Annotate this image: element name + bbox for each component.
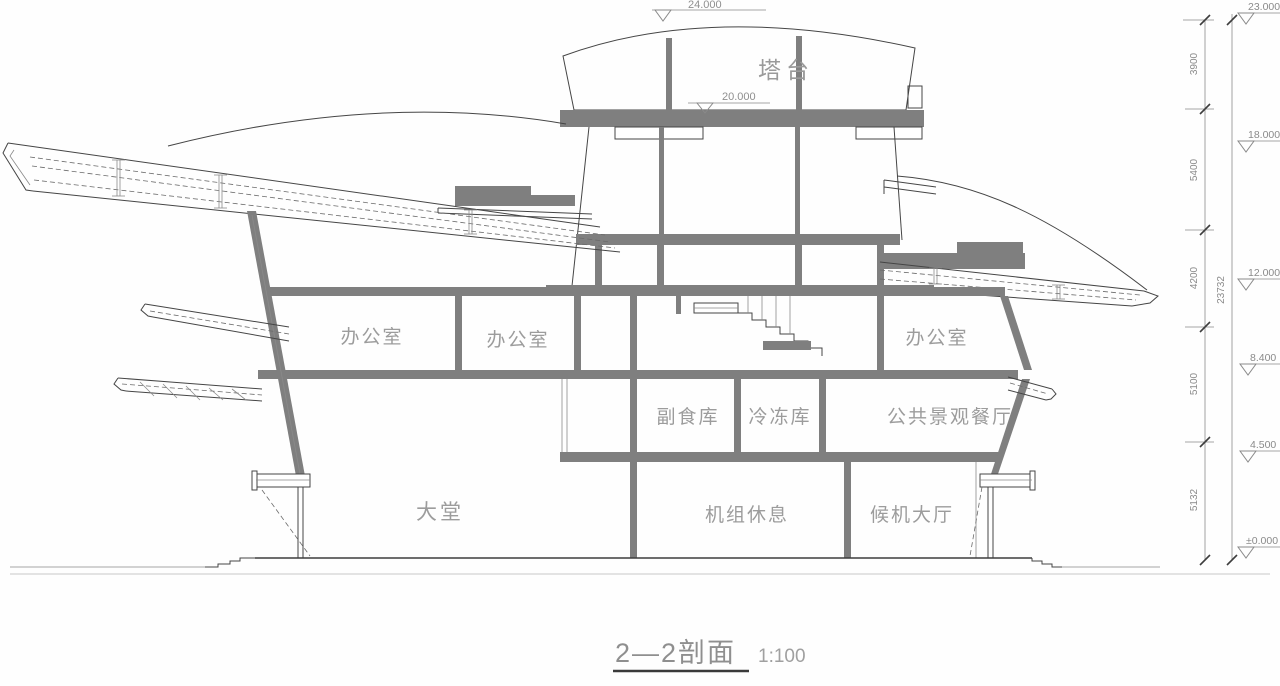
elevation-triangle-icon <box>1238 547 1254 558</box>
svg-text:23.000: 23.000 <box>1248 1 1280 13</box>
right-canopy <box>1008 377 1056 400</box>
room-label-crew-rest: 机组休息 <box>705 504 789 526</box>
room-label-office-left: 办公室 <box>340 326 403 348</box>
elevation-triangle-icon <box>1238 141 1254 152</box>
svg-text:12.000: 12.000 <box>1248 267 1280 279</box>
left-strut-column <box>247 211 310 558</box>
elevation-marker: 18.000 <box>1238 129 1280 152</box>
dim-segment: 5400 <box>1189 158 1200 181</box>
section-drawing-canvas: 塔台 24.000 20.000 <box>0 0 1280 686</box>
cab-base-band <box>560 110 924 127</box>
drawing-title-block: 2—2剖面 1:100 <box>613 638 806 671</box>
elevation-marker: ±0.000 <box>1238 535 1280 558</box>
elevation-marker: 23.000 <box>1238 1 1280 24</box>
stair-detail <box>694 296 822 356</box>
floor-slab-mid <box>258 370 1018 379</box>
svg-text:±0.000: ±0.000 <box>1246 535 1278 547</box>
elevation-value: 24.000 <box>688 0 722 11</box>
floor-slab-offices <box>264 287 1005 296</box>
tower-shaft <box>546 127 934 296</box>
room-label-office-mid: 办公室 <box>486 329 549 351</box>
elevation-marker-24000: 24.000 <box>652 0 766 21</box>
room-label-cold-storage: 冷冻库 <box>748 406 811 428</box>
ground <box>10 558 1270 574</box>
floor-slab-lower <box>560 452 1000 462</box>
dim-total: 23732 <box>1216 276 1227 304</box>
elevation-triangle-icon <box>1238 13 1254 24</box>
room-label-restaurant: 公共景观餐厅 <box>887 406 1013 428</box>
left-ibeam-bracket <box>256 474 310 487</box>
elevation-triangle-icon <box>1240 364 1256 375</box>
right-roof-curve <box>897 176 1147 290</box>
dim-segment: 5132 <box>1189 488 1200 511</box>
left-roof-curve <box>168 112 566 146</box>
elevation-markers-right: 23.000 18.000 12.000 8.400 4.500 ±0.000 <box>1238 1 1280 558</box>
drawing-scale: 1:100 <box>758 646 806 667</box>
right-shoulder-slabs <box>880 180 1025 269</box>
elevation-marker: 8.400 <box>1240 352 1280 375</box>
cab-trim-right <box>856 127 922 139</box>
tower-cab-label: 塔台 <box>758 57 814 83</box>
room-label-office-right: 办公室 <box>905 327 968 349</box>
left-shoulder-slabs <box>438 186 592 219</box>
dimension-chain: 3900 5400 4200 5100 5132 23732 <box>1183 14 1237 565</box>
tower-cab: 塔台 <box>560 27 924 139</box>
elevation-marker: 4.500 <box>1240 439 1280 462</box>
room-label-waiting-hall: 候机大厅 <box>870 504 954 526</box>
room-label-food-storage: 副食库 <box>656 406 719 428</box>
cab-notch <box>908 86 922 108</box>
elevation-value: 20.000 <box>722 91 756 103</box>
dim-segment: 3900 <box>1189 52 1200 75</box>
elevation-triangle-icon <box>1238 279 1254 290</box>
dim-segment: 5100 <box>1189 372 1200 395</box>
drawing-title: 2—2剖面 <box>615 638 736 668</box>
svg-text:4.500: 4.500 <box>1250 439 1276 451</box>
right-ibeam-bracket <box>980 474 1032 487</box>
left-canopy-lower <box>114 378 262 401</box>
cab-mullion <box>666 38 672 110</box>
svg-text:8.400: 8.400 <box>1250 352 1276 364</box>
tower-floor-band <box>576 234 900 245</box>
svg-text:18.000: 18.000 <box>1248 129 1280 141</box>
dim-segment: 4200 <box>1189 266 1200 289</box>
elevation-triangle-icon <box>1240 451 1256 462</box>
building-section-svg: 塔台 24.000 20.000 <box>0 0 1280 686</box>
elevation-marker: 12.000 <box>1238 267 1280 290</box>
elevation-triangle-icon <box>655 10 671 21</box>
room-label-lobby: 大堂 <box>416 501 464 524</box>
